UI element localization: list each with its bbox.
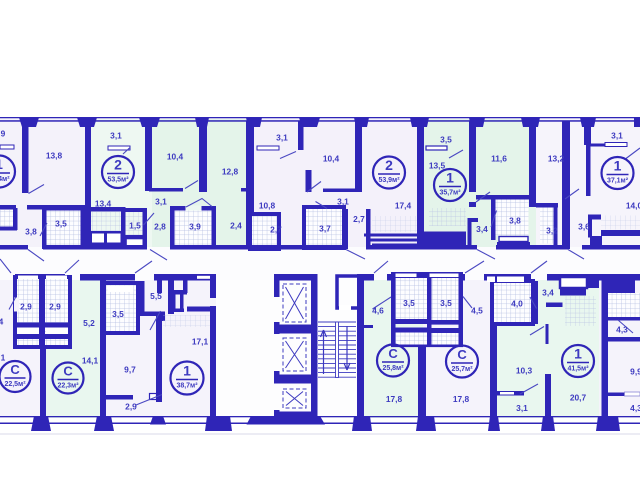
svg-text:3,1: 3,1 xyxy=(155,197,167,207)
svg-text:3,1: 3,1 xyxy=(276,133,288,143)
svg-text:1: 1 xyxy=(446,170,454,186)
svg-text:С: С xyxy=(388,346,398,361)
svg-text:1: 1 xyxy=(0,156,3,172)
svg-text:3,9: 3,9 xyxy=(189,222,201,232)
svg-text:5,5: 5,5 xyxy=(150,291,162,301)
svg-text:3,8: 3,8 xyxy=(509,216,521,226)
svg-text:2: 2 xyxy=(385,157,393,173)
svg-text:3,5: 3,5 xyxy=(112,309,124,319)
svg-text:С: С xyxy=(63,364,73,379)
svg-text:41,5м²: 41,5м² xyxy=(567,366,589,373)
svg-text:3,5: 3,5 xyxy=(403,298,415,308)
svg-text:4,0: 4,0 xyxy=(511,299,523,309)
svg-text:25,8м²: 25,8м² xyxy=(382,365,404,372)
svg-text:2,9: 2,9 xyxy=(20,302,32,312)
svg-text:9,9: 9,9 xyxy=(630,367,640,377)
svg-text:3,1: 3,1 xyxy=(611,131,623,141)
svg-text:13,4: 13,4 xyxy=(95,199,112,209)
svg-text:2: 2 xyxy=(114,157,122,173)
svg-text:13,5: 13,5 xyxy=(429,161,446,171)
svg-text:10,4: 10,4 xyxy=(323,154,340,164)
svg-text:10,4: 10,4 xyxy=(167,152,184,162)
svg-text:1: 1 xyxy=(183,363,191,379)
svg-text:25,7м²: 25,7м² xyxy=(451,366,473,373)
svg-text:3,5: 3,5 xyxy=(440,298,452,308)
svg-text:10,3: 10,3 xyxy=(516,366,533,376)
svg-text:22,3м²: 22,3м² xyxy=(57,383,79,390)
svg-text:3,5: 3,5 xyxy=(55,219,67,229)
svg-text:3,8: 3,8 xyxy=(25,227,37,237)
svg-text:3,6: 3,6 xyxy=(578,222,590,232)
svg-text:3,2: 3,2 xyxy=(546,226,558,236)
svg-text:2,4: 2,4 xyxy=(230,221,242,231)
svg-text:17,1: 17,1 xyxy=(192,337,209,347)
svg-text:37,4м²: 37,4м² xyxy=(0,176,10,183)
svg-text:4,5: 4,5 xyxy=(471,306,483,316)
svg-text:9,7: 9,7 xyxy=(124,365,136,375)
svg-text:4,3: 4,3 xyxy=(616,325,628,335)
svg-text:1,5: 1,5 xyxy=(129,221,141,231)
svg-text:2,9: 2,9 xyxy=(49,302,61,312)
svg-text:38,7м²: 38,7м² xyxy=(176,383,198,390)
svg-text:20,7: 20,7 xyxy=(570,393,587,403)
svg-text:11,6: 11,6 xyxy=(491,154,507,164)
svg-text:17,8: 17,8 xyxy=(386,394,403,404)
svg-text:5,2: 5,2 xyxy=(83,318,95,328)
svg-text:1: 1 xyxy=(1,353,6,363)
svg-text:1: 1 xyxy=(614,158,622,174)
svg-text:17,8: 17,8 xyxy=(453,394,470,404)
svg-text:3,1: 3,1 xyxy=(516,403,528,413)
svg-text:1: 1 xyxy=(574,346,582,362)
svg-text:10,8: 10,8 xyxy=(259,201,276,211)
svg-text:17,4: 17,4 xyxy=(395,201,412,211)
svg-text:3,5: 3,5 xyxy=(440,135,452,145)
svg-text:53,9м²: 53,9м² xyxy=(378,177,400,184)
svg-text:2,8: 2,8 xyxy=(154,222,166,232)
svg-text:37,1м²: 37,1м² xyxy=(607,178,629,185)
svg-text:3,1: 3,1 xyxy=(337,197,349,207)
svg-text:2,7: 2,7 xyxy=(353,214,365,224)
svg-text:4,6: 4,6 xyxy=(372,306,384,316)
svg-text:13,2: 13,2 xyxy=(548,154,565,164)
svg-text:14,1: 14,1 xyxy=(82,356,99,366)
svg-text:С: С xyxy=(10,362,20,377)
svg-text:2,7: 2,7 xyxy=(270,225,282,235)
svg-text:2,9: 2,9 xyxy=(125,402,137,412)
svg-text:22,5м²: 22,5м² xyxy=(4,381,26,388)
svg-text:4,3: 4,3 xyxy=(630,403,640,413)
svg-text:53,5м²: 53,5м² xyxy=(107,177,129,184)
svg-text:12,8: 12,8 xyxy=(222,167,239,177)
svg-text:3,4: 3,4 xyxy=(476,224,488,234)
svg-text:13,8: 13,8 xyxy=(46,151,63,161)
svg-text:4: 4 xyxy=(0,317,4,327)
svg-text:14,0: 14,0 xyxy=(626,201,640,211)
svg-text:3,7: 3,7 xyxy=(319,224,331,234)
svg-text:С: С xyxy=(457,347,467,362)
svg-text:3,4: 3,4 xyxy=(542,288,554,298)
svg-text:35,7м²: 35,7м² xyxy=(439,190,461,197)
svg-text:3,1: 3,1 xyxy=(110,131,122,141)
svg-text:9: 9 xyxy=(1,129,6,139)
